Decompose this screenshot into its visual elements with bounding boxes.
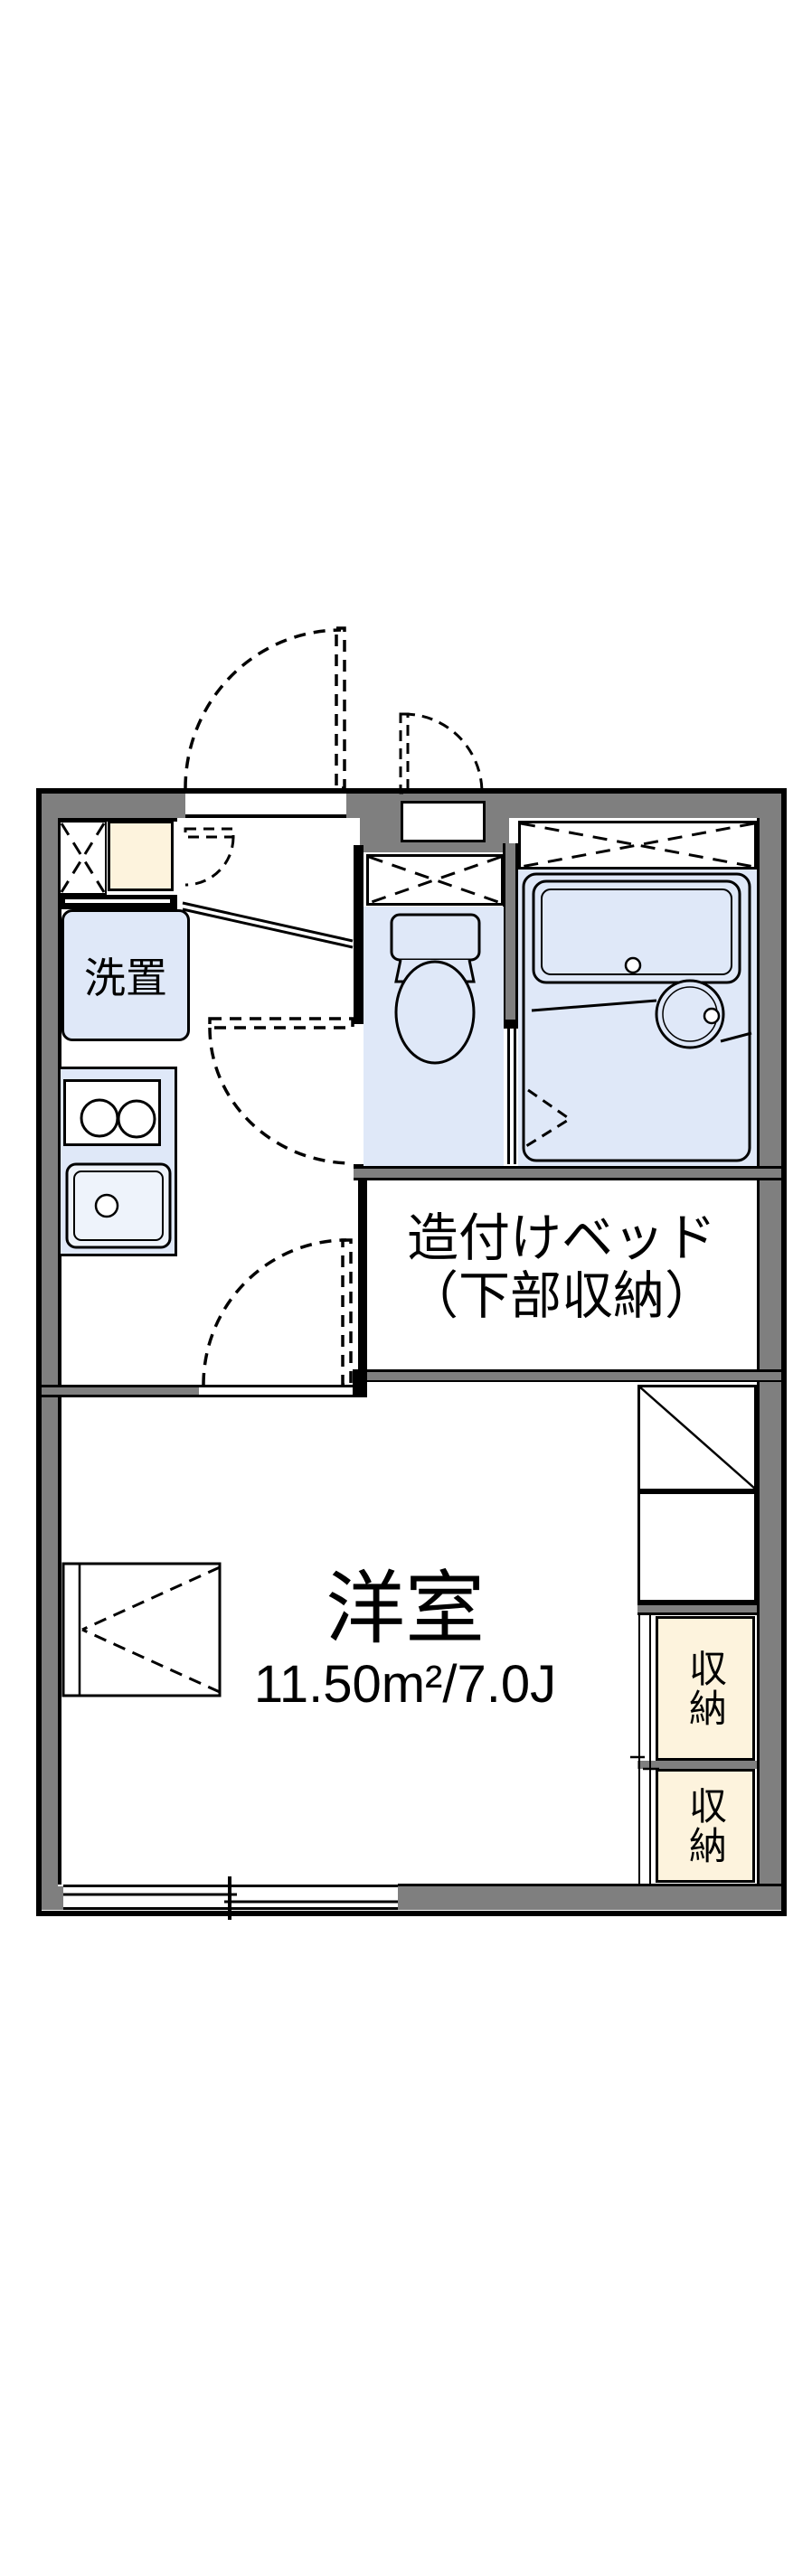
stove-burners-icon — [81, 1100, 155, 1137]
storage-track-lines — [630, 1615, 659, 1885]
toilet-fixture — [392, 915, 479, 1063]
main-room-desk — [63, 1564, 220, 1696]
bath-basin-drain-icon — [704, 1009, 719, 1023]
bedroom-label-line2: （下部収納） — [407, 1268, 716, 1326]
bedroom-label: 造付けベッド （下部収納） — [366, 1209, 757, 1327]
main-room-area: 11.50m²/7.0J — [206, 1654, 604, 1714]
main-room-door-swing — [203, 1240, 351, 1385]
bathroom-vent-x-icon — [521, 823, 754, 867]
entrance-door-swing — [185, 628, 345, 788]
kitchen-closet-x-icon — [61, 823, 104, 892]
entrance-step-edge — [183, 903, 353, 947]
toilet-door-swing — [210, 1019, 353, 1163]
main-room-name: 洋室 — [224, 1556, 586, 1647]
floorplan-canvas: 洗置 収納 収納 — [0, 0, 812, 2576]
kitchen-sink — [67, 1164, 170, 1247]
kitchen-closet-door-swing — [185, 829, 233, 885]
bathroom-door-chevron — [526, 1090, 570, 1146]
meter-box-door-swing — [401, 714, 482, 793]
bedroom-label-line1: 造付けベッド — [407, 1210, 716, 1268]
bathroom-enclosure — [524, 874, 751, 1161]
toilet-cabinet-x-icon — [369, 857, 501, 903]
main-window-mullion — [228, 1876, 231, 1920]
sink-drain-icon — [96, 1195, 118, 1217]
bathtub-drain-icon — [626, 958, 640, 973]
side-shelf-diagonal — [639, 1387, 755, 1489]
